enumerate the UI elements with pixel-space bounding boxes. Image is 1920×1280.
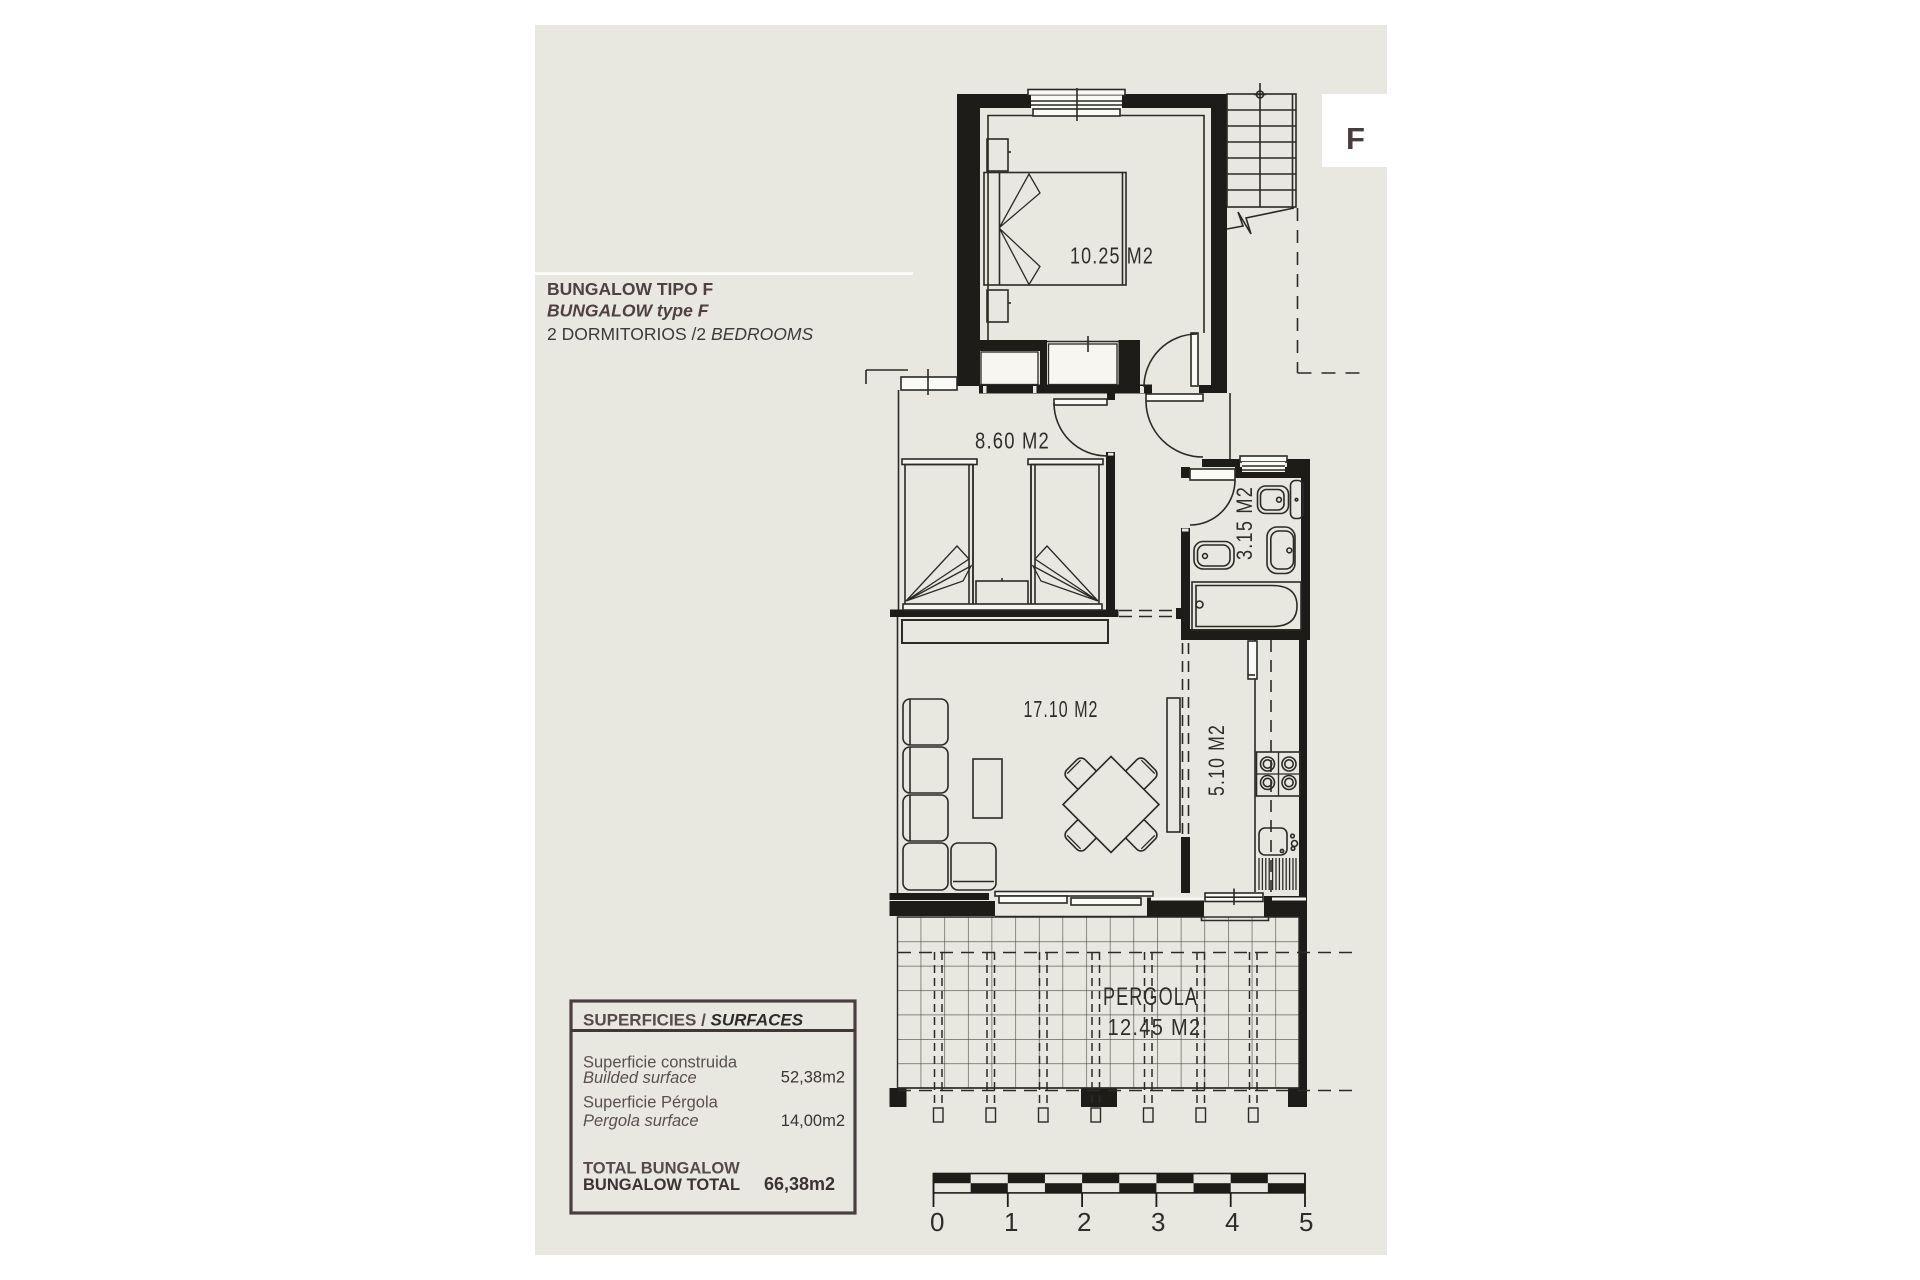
svg-text:1: 1 — [1004, 1207, 1020, 1237]
svg-text:10.25 M2: 10.25 M2 — [1070, 243, 1154, 269]
svg-text:2 DORMITORIOS /2 BEDROOMS: 2 DORMITORIOS /2 BEDROOMS — [547, 324, 813, 344]
svg-text:3.15 M2: 3.15 M2 — [1232, 486, 1257, 560]
svg-text:BUNGALOW TOTAL: BUNGALOW TOTAL — [583, 1176, 740, 1194]
svg-text:5: 5 — [1299, 1207, 1315, 1237]
svg-text:4: 4 — [1225, 1207, 1241, 1237]
svg-text:Builded surface: Builded surface — [583, 1069, 697, 1087]
svg-text:PERGOLA: PERGOLA — [1103, 983, 1198, 1011]
svg-text:Superficie Pérgola: Superficie Pérgola — [583, 1094, 719, 1112]
svg-text:BUNGALOW type F: BUNGALOW type F — [547, 301, 710, 321]
svg-text:5.10 M2: 5.10 M2 — [1204, 724, 1229, 796]
svg-text:BUNGALOW TIPO F: BUNGALOW TIPO F — [547, 279, 714, 299]
svg-text:SUPERFICIES / SURFACES: SUPERFICIES / SURFACES — [583, 1011, 804, 1030]
svg-text:8.60 M2: 8.60 M2 — [975, 428, 1050, 454]
svg-text:52,38m2: 52,38m2 — [781, 1069, 845, 1087]
svg-text:12.45 M2: 12.45 M2 — [1108, 1014, 1202, 1040]
svg-text:3: 3 — [1151, 1207, 1167, 1237]
svg-text:17.10 M2: 17.10 M2 — [1024, 696, 1099, 722]
svg-text:0: 0 — [930, 1207, 946, 1237]
svg-text:F: F — [1346, 121, 1365, 156]
svg-text:66,38m2: 66,38m2 — [764, 1174, 835, 1194]
svg-text:14,00m2: 14,00m2 — [781, 1112, 845, 1130]
svg-text:Pergola surface: Pergola surface — [583, 1112, 699, 1130]
svg-text:TOTAL BUNGALOW: TOTAL BUNGALOW — [583, 1160, 740, 1178]
svg-text:2: 2 — [1077, 1207, 1093, 1237]
